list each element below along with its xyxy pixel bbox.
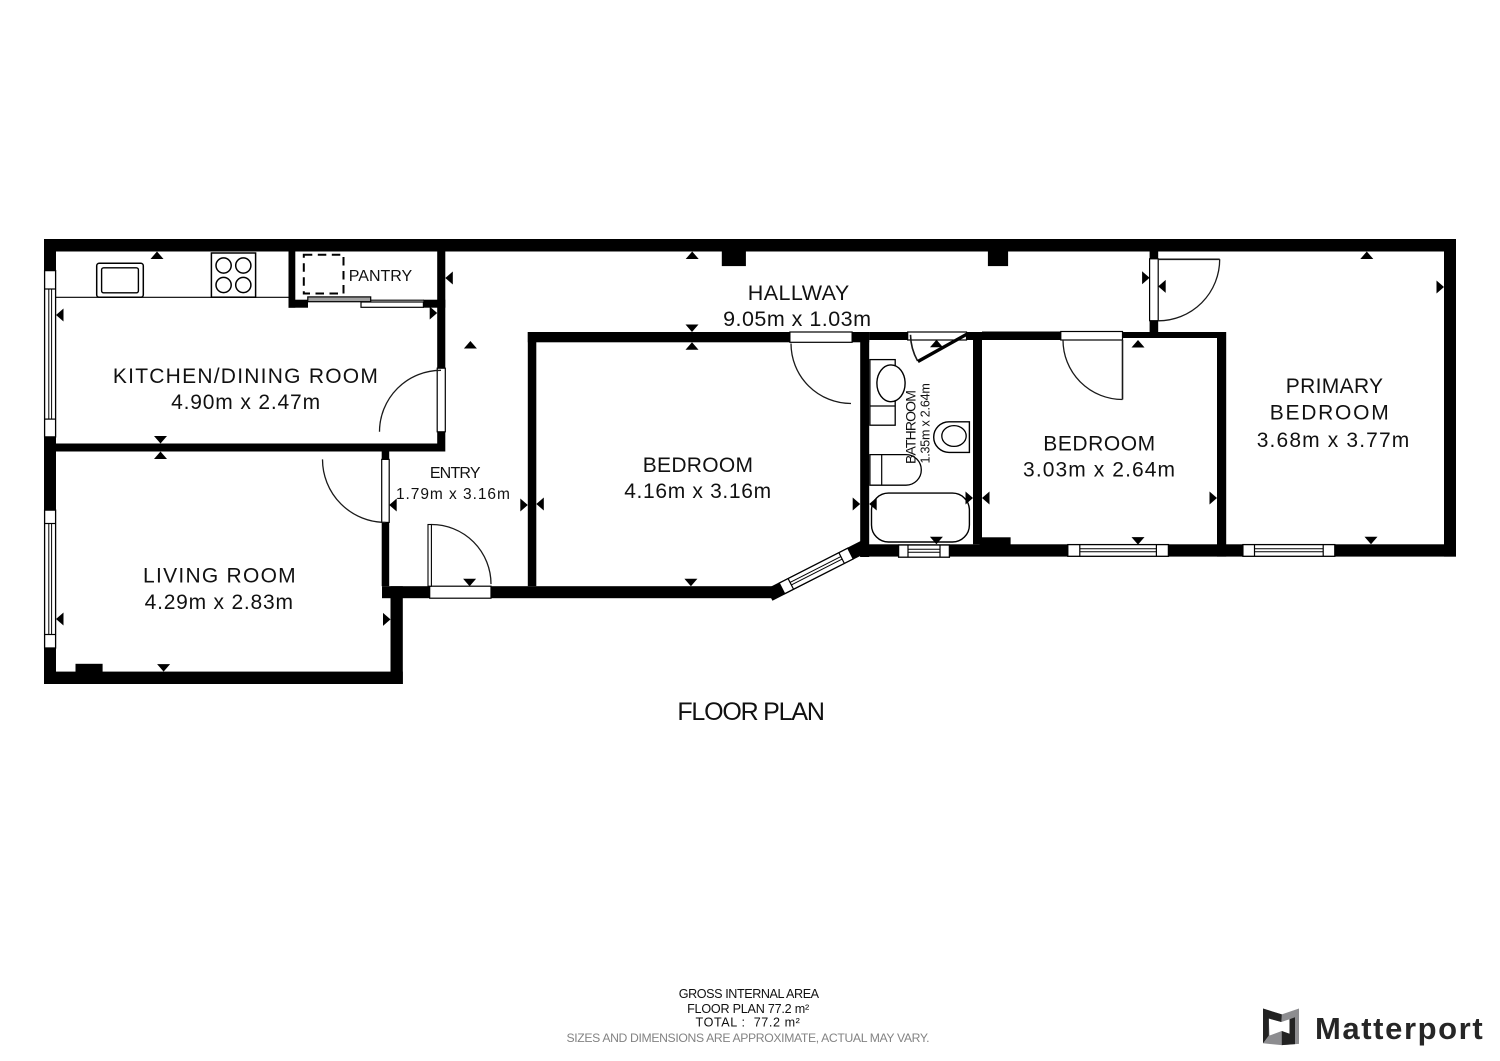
svg-text:3.68m x 3.77m: 3.68m x 3.77m xyxy=(1257,429,1411,452)
svg-text:PANTRY: PANTRY xyxy=(349,268,413,285)
svg-text:FLOOR PLAN 77.2 m²: FLOOR PLAN 77.2 m² xyxy=(687,1002,809,1016)
svg-text:GROSS INTERNAL AREA: GROSS INTERNAL AREA xyxy=(679,987,820,1001)
svg-text:BEDROOM: BEDROOM xyxy=(643,454,753,477)
svg-text:SIZES AND DIMENSIONS ARE APPRO: SIZES AND DIMENSIONS ARE APPROXIMATE, AC… xyxy=(566,1031,929,1045)
svg-text:BATHROOM: BATHROOM xyxy=(903,391,919,464)
svg-text:1.79m x 3.16m: 1.79m x 3.16m xyxy=(396,486,511,503)
svg-text:FLOOR PLAN: FLOOR PLAN xyxy=(677,698,824,726)
svg-text:Matterport: Matterport xyxy=(1315,1011,1484,1046)
svg-text:BEDROOM: BEDROOM xyxy=(1043,433,1155,456)
svg-text:1.35m x 2.64m: 1.35m x 2.64m xyxy=(919,383,933,463)
svg-text:LIVING ROOM: LIVING ROOM xyxy=(143,565,297,588)
svg-text:TOTAL : 77.2 m²: TOTAL : 77.2 m² xyxy=(696,1016,801,1030)
svg-text:PRIMARY: PRIMARY xyxy=(1286,375,1384,398)
svg-text:BEDROOM: BEDROOM xyxy=(1270,402,1391,425)
svg-text:4.16m x 3.16m: 4.16m x 3.16m xyxy=(624,480,772,503)
svg-text:KITCHEN/DINING ROOM: KITCHEN/DINING ROOM xyxy=(113,365,379,388)
svg-text:9.05m x 1.03m: 9.05m x 1.03m xyxy=(723,307,871,331)
svg-text:4.29m x 2.83m: 4.29m x 2.83m xyxy=(145,591,294,614)
svg-text:3.03m x 2.64m: 3.03m x 2.64m xyxy=(1023,458,1176,481)
svg-text:4.90m x 2.47m: 4.90m x 2.47m xyxy=(171,391,321,414)
svg-text:HALLWAY: HALLWAY xyxy=(748,281,850,305)
svg-text:ENTRY: ENTRY xyxy=(430,465,481,482)
